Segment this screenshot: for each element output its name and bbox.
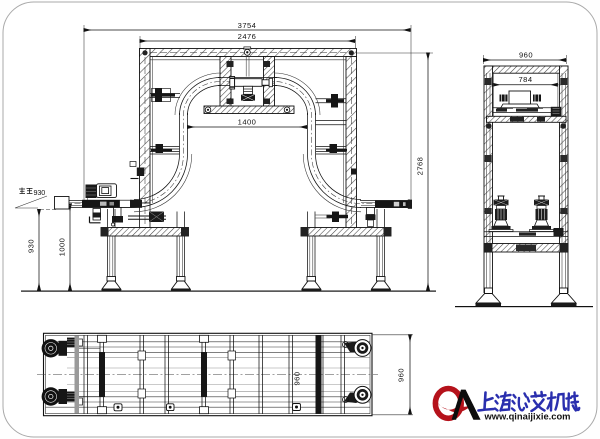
svg-text:3754: 3754 bbox=[238, 21, 257, 30]
svg-text:960: 960 bbox=[397, 368, 406, 382]
svg-text:930: 930 bbox=[27, 239, 36, 253]
svg-text:960: 960 bbox=[293, 371, 302, 385]
svg-text:www.qinaijixie.com: www.qinaijixie.com bbox=[484, 410, 571, 421]
svg-text:960: 960 bbox=[519, 51, 533, 60]
svg-text:1000: 1000 bbox=[58, 238, 67, 257]
svg-text:784: 784 bbox=[518, 75, 532, 84]
svg-text:1400: 1400 bbox=[238, 118, 257, 127]
svg-text:930: 930 bbox=[34, 188, 46, 197]
svg-text:2768: 2768 bbox=[416, 157, 425, 176]
svg-text:2476: 2476 bbox=[238, 32, 257, 41]
